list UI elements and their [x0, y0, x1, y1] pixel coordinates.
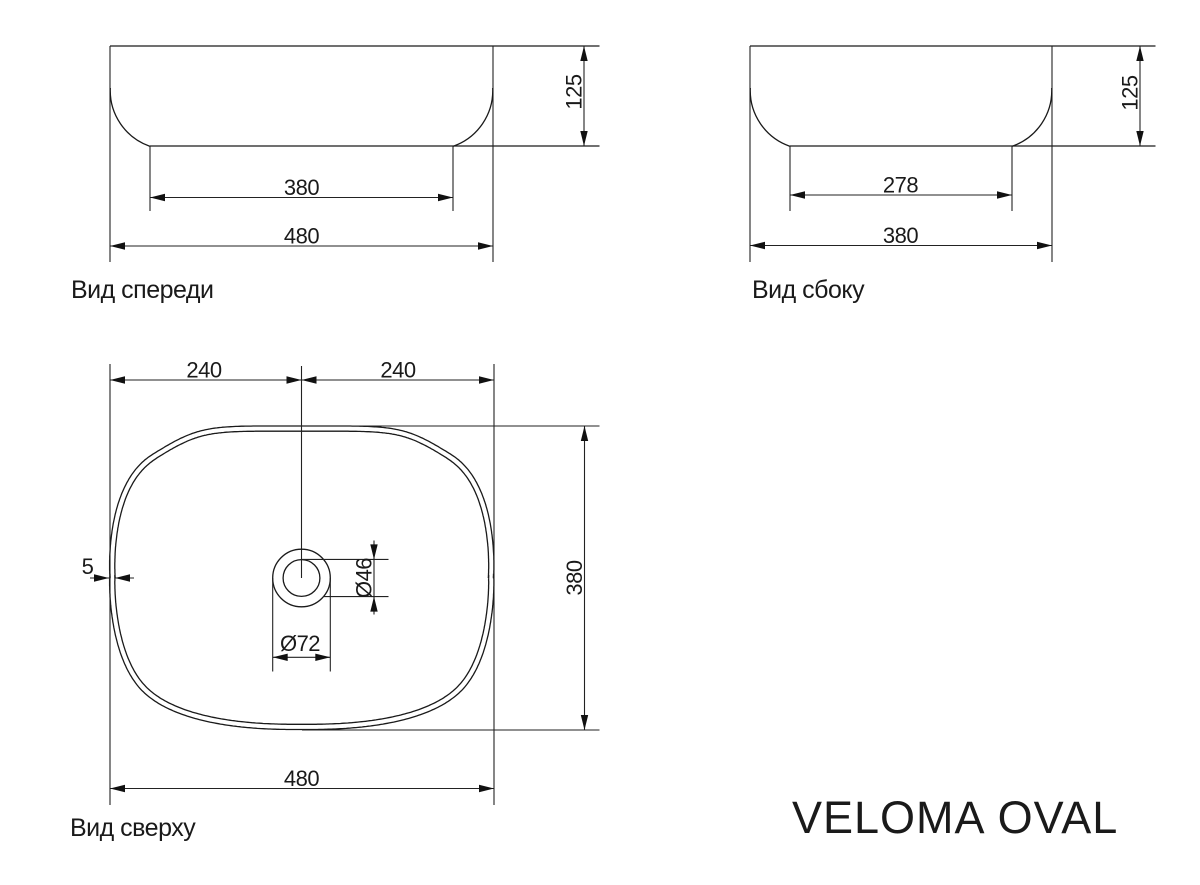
svg-text:Ø46: Ø46 [352, 558, 377, 598]
svg-text:5: 5 [82, 554, 94, 579]
svg-text:480: 480 [284, 766, 319, 791]
svg-text:380: 380 [562, 560, 587, 595]
svg-text:125: 125 [562, 74, 587, 109]
svg-text:380: 380 [284, 175, 319, 200]
svg-text:240: 240 [186, 358, 221, 383]
svg-text:125: 125 [1118, 75, 1143, 110]
svg-text:Ø72: Ø72 [280, 631, 320, 656]
svg-text:Вид спереди: Вид спереди [71, 276, 213, 304]
svg-text:278: 278 [883, 173, 918, 198]
svg-text:Вид сбоку: Вид сбоку [752, 276, 865, 304]
svg-text:480: 480 [284, 224, 319, 249]
svg-text:380: 380 [883, 223, 918, 248]
svg-text:Вид сверху: Вид сверху [70, 814, 196, 842]
svg-text:240: 240 [380, 358, 415, 383]
svg-text:VELOMA OVAL: VELOMA OVAL [792, 792, 1118, 843]
